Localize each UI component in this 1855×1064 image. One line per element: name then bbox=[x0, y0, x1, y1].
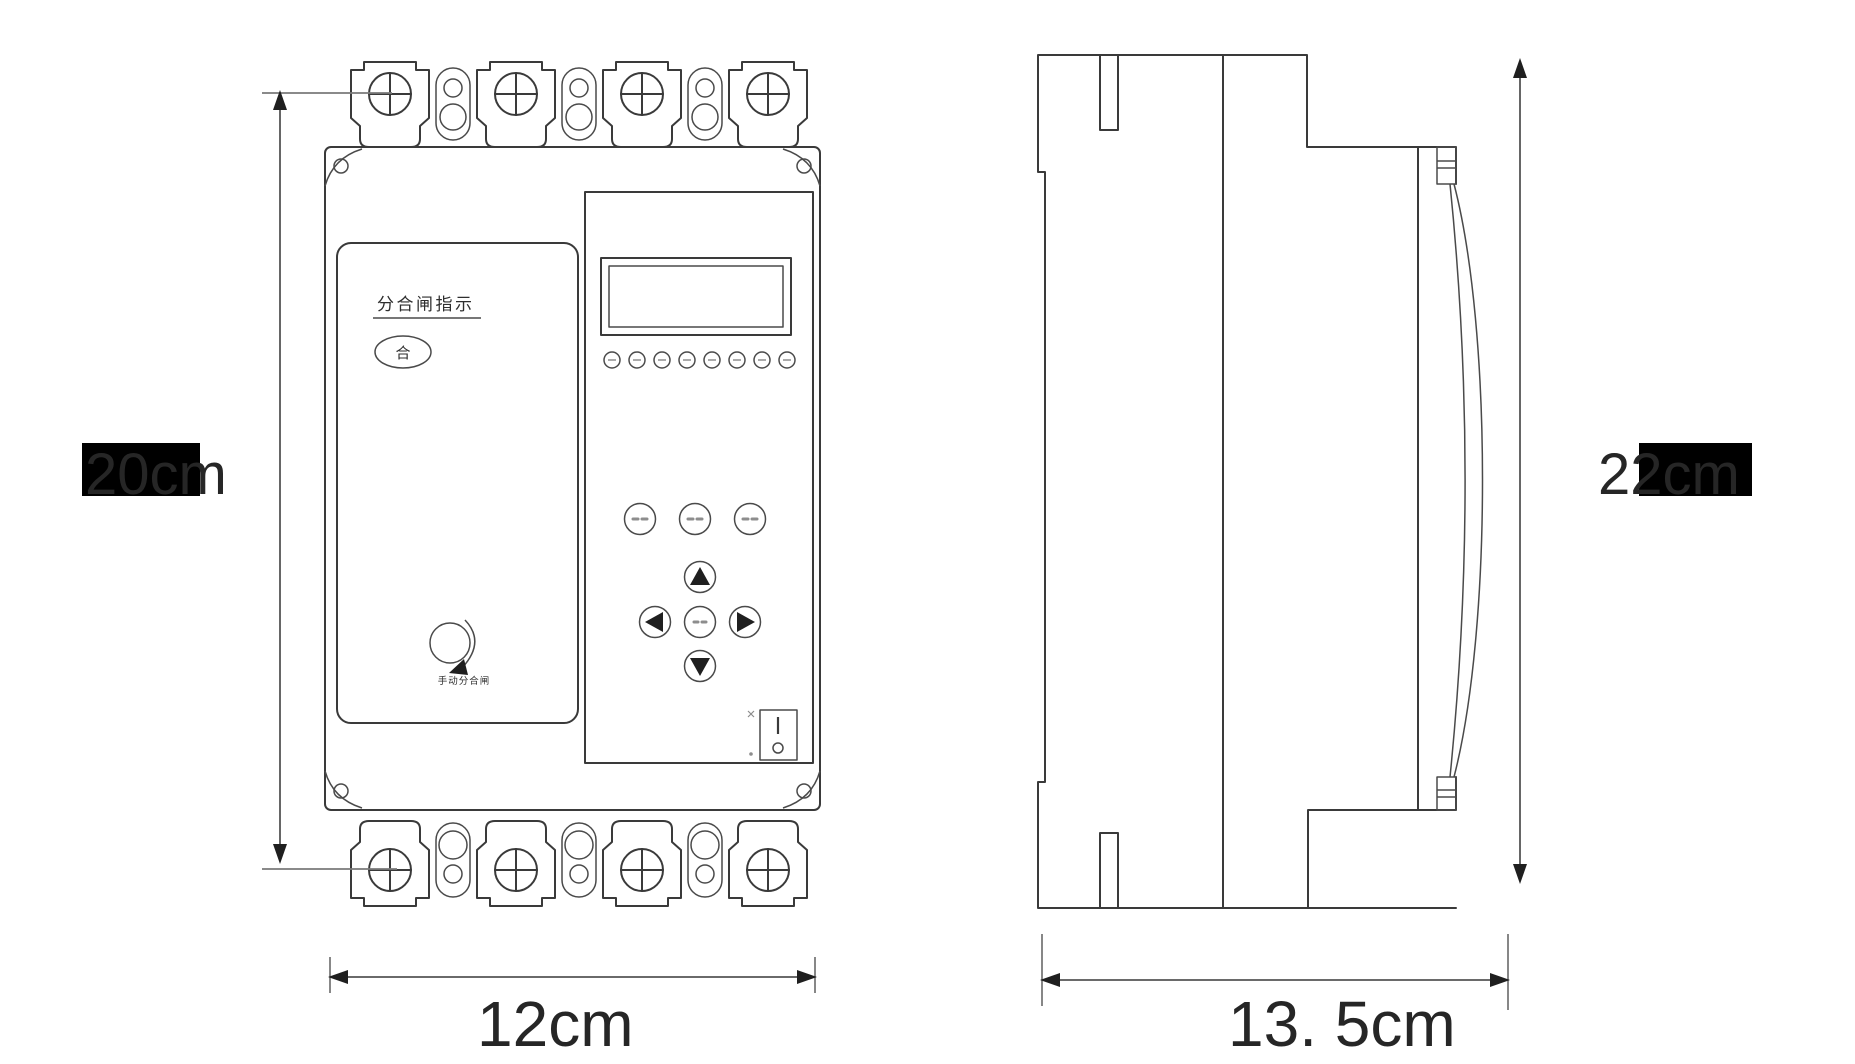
function-button bbox=[735, 504, 766, 535]
arrow-right-icon bbox=[1490, 973, 1510, 987]
led-icon bbox=[604, 352, 620, 368]
led-icon bbox=[754, 352, 770, 368]
manual-knob-label: 手动分合闸 bbox=[438, 675, 491, 687]
switch-upper-tick bbox=[748, 711, 754, 717]
led-icon bbox=[654, 352, 670, 368]
side-profile bbox=[1038, 55, 1456, 908]
terminal-lug bbox=[477, 821, 555, 906]
led-icon bbox=[704, 352, 720, 368]
corner-screw-bottom-left bbox=[325, 771, 362, 808]
corner-screw-bottom-right bbox=[783, 771, 820, 808]
dim-side-height: 22cm bbox=[1513, 58, 1752, 884]
terminal-oval bbox=[436, 823, 470, 897]
terminal-lug bbox=[729, 62, 807, 147]
indicator-panel-label: 分合闸指示 bbox=[377, 295, 475, 315]
dim-side-depth: 13. 5cm bbox=[1040, 934, 1510, 1060]
terminal-lug bbox=[351, 821, 429, 906]
terminal-lug bbox=[477, 62, 555, 147]
right-triangle-icon bbox=[737, 612, 755, 632]
terminal-oval bbox=[436, 68, 470, 140]
side-depth-label: 13. 5cm bbox=[1228, 988, 1456, 1060]
front-height-label: 20cm bbox=[85, 442, 227, 507]
terminal-lug bbox=[729, 821, 807, 906]
center-button bbox=[685, 607, 716, 638]
arrow-down-icon bbox=[273, 844, 287, 864]
terminal-oval bbox=[562, 68, 596, 140]
close-state-label: 合 bbox=[395, 344, 410, 362]
bottom-slot bbox=[1100, 833, 1118, 908]
switch-off-mark-icon bbox=[773, 743, 783, 753]
dim-front-height: 20cm bbox=[82, 90, 397, 869]
terminal-lug bbox=[351, 62, 429, 147]
control-panel-frame bbox=[585, 192, 813, 763]
arrow-down-icon bbox=[1513, 864, 1527, 884]
front-view: 分合闸指示 合 手动分合闸 bbox=[325, 62, 820, 906]
side-view bbox=[1038, 55, 1483, 908]
terminal-lug bbox=[603, 62, 681, 147]
function-button-row bbox=[625, 504, 766, 535]
led-icon bbox=[679, 352, 695, 368]
terminal-row-bottom bbox=[351, 821, 807, 906]
control-panel bbox=[585, 192, 813, 763]
arrow-left-icon bbox=[328, 970, 348, 984]
corner-screw-top-left bbox=[325, 149, 362, 186]
terminal-oval bbox=[688, 68, 722, 140]
side-height-label: 22cm bbox=[1598, 442, 1740, 507]
dim-front-width: 12cm bbox=[328, 957, 817, 1060]
function-button bbox=[680, 504, 711, 535]
led-icon bbox=[729, 352, 745, 368]
bottom-clip bbox=[1437, 777, 1456, 810]
cover-bulge-inner-arc bbox=[1450, 184, 1465, 777]
down-triangle-icon bbox=[690, 658, 710, 676]
dpad bbox=[640, 562, 761, 682]
arrow-left-icon bbox=[1040, 973, 1060, 987]
terminal-oval bbox=[688, 823, 722, 897]
manual-knob bbox=[430, 620, 475, 675]
led-icon bbox=[779, 352, 795, 368]
terminal-oval bbox=[562, 823, 596, 897]
terminal-lug bbox=[603, 821, 681, 906]
technical-drawing: 分合闸指示 合 手动分合闸 bbox=[0, 0, 1855, 1064]
corner-screw-top-right bbox=[783, 149, 820, 186]
diagram-canvas: 分合闸指示 合 手动分合闸 bbox=[0, 0, 1855, 1064]
left-triangle-icon bbox=[645, 612, 663, 632]
top-clip bbox=[1437, 147, 1456, 184]
arrow-up-icon bbox=[1513, 58, 1527, 78]
front-width-label: 12cm bbox=[477, 988, 634, 1060]
lcd-display bbox=[601, 258, 791, 335]
indicator-panel: 分合闸指示 合 手动分合闸 bbox=[337, 243, 578, 723]
top-slot bbox=[1100, 55, 1118, 130]
rocker-switch bbox=[748, 710, 797, 760]
knob-circle-icon bbox=[430, 623, 470, 663]
function-button bbox=[625, 504, 656, 535]
up-triangle-icon bbox=[690, 567, 710, 585]
switch-lower-tick bbox=[749, 752, 753, 756]
terminal-row-top bbox=[351, 62, 807, 147]
led-indicator-row bbox=[604, 352, 795, 368]
arrow-right-icon bbox=[797, 970, 817, 984]
led-icon bbox=[629, 352, 645, 368]
